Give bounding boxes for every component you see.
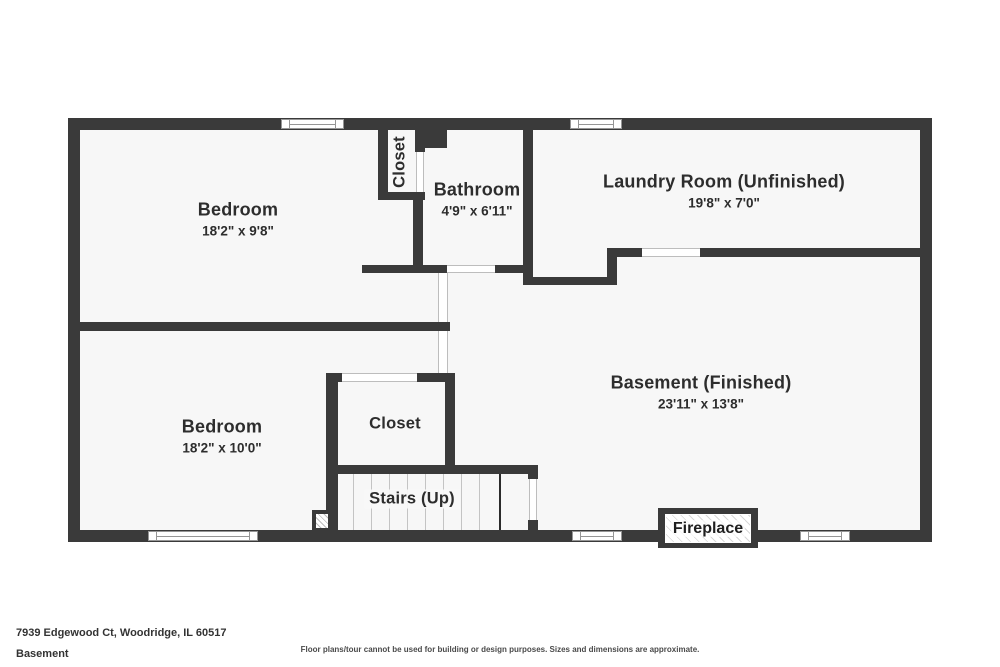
door-closet-top [416, 152, 424, 192]
wall-laundry-left [523, 130, 533, 285]
wall-laundry-bottom-left [607, 248, 642, 257]
stair-tread [461, 474, 462, 530]
fireplace: Fireplace [658, 508, 758, 548]
floor-plan-page: Fireplace Bedroom 18'2" x 9'8" Closet Ba… [0, 0, 1000, 667]
wall-stairs-right-top-stub [528, 465, 538, 479]
room-name: Laundry Room (Unfinished) [603, 172, 845, 193]
room-label-bedroom-bottom: Bedroom 18'2" x 10'0" [182, 417, 262, 456]
wall-laundry-bottom-right [700, 248, 920, 257]
door-hall-upper [438, 273, 448, 322]
room-name: Stairs (Up) [364, 490, 460, 509]
fireplace-hearth: Fireplace [665, 514, 751, 543]
fireplace-label: Fireplace [671, 520, 745, 537]
window-top-bedroom [281, 119, 344, 129]
room-label-bedroom-top: Bedroom 18'2" x 9'8" [198, 200, 278, 239]
room-name: Basement (Finished) [611, 373, 792, 394]
wall-outer-top [68, 118, 932, 130]
wall-outer-right [920, 118, 932, 542]
room-dims: 18'2" x 9'8" [198, 224, 278, 239]
room-name: Closet [369, 415, 421, 434]
wall-bathroom-bottom-left [362, 265, 447, 273]
support-post [312, 510, 332, 532]
stair-tread [479, 474, 480, 530]
room-label-closet-top: Closet [391, 136, 410, 188]
stair-tread [353, 474, 354, 530]
room-name: Closet [391, 136, 410, 188]
room-name: Bathroom [434, 180, 521, 201]
wall-closet-bottom-right [445, 373, 455, 474]
room-label-laundry: Laundry Room (Unfinished) 19'8" x 7'0" [603, 172, 845, 211]
room-label-closet-bottom: Closet [369, 415, 421, 434]
room-dims: 23'11" x 13'8" [611, 397, 792, 412]
window-top-laundry [570, 119, 622, 129]
wall-bedroom-divider [68, 322, 450, 331]
door-stairs [529, 479, 537, 520]
window-bottom-bedroom [148, 531, 258, 541]
wall-closet-bottom-top-stub [326, 373, 342, 382]
wall-laundry-alcove-bottom [523, 277, 617, 285]
door-hall-lower [438, 331, 448, 373]
room-name: Bedroom [182, 417, 262, 438]
door-laundry [642, 248, 700, 257]
disclaimer-text: Floor plans/tour cannot be used for buil… [301, 645, 700, 654]
room-dims: 18'2" x 10'0" [182, 441, 262, 456]
window-bottom-basement-left [572, 531, 622, 541]
wall-stairs-top [326, 465, 538, 474]
wall-stairs-right-bottom-stub [528, 520, 538, 530]
floor-plan-drawing: Fireplace Bedroom 18'2" x 9'8" Closet Ba… [0, 0, 1000, 667]
room-name: Bedroom [198, 200, 278, 221]
room-label-bathroom: Bathroom 4'9" x 6'11" [434, 180, 521, 219]
floor-level-label: Basement [16, 648, 69, 660]
property-address: 7939 Edgewood Ct, Woodridge, IL 60517 [16, 627, 226, 639]
room-dims: 19'8" x 7'0" [603, 196, 845, 211]
window-bottom-basement-right [800, 531, 850, 541]
wall-closet-top-right-stub [415, 130, 425, 152]
room-dims: 4'9" x 6'11" [434, 204, 521, 219]
room-label-stairs: Stairs (Up) [364, 490, 460, 509]
wall-closet-top-left [378, 130, 388, 200]
stair-break-line [499, 474, 501, 530]
door-bathroom [447, 265, 495, 273]
door-closet-bottom [342, 373, 417, 382]
wall-bathroom-left [413, 192, 423, 273]
wall-chase-block [425, 130, 447, 148]
room-label-basement: Basement (Finished) 23'11" x 13'8" [611, 373, 792, 412]
wall-closet-bottom-left [326, 373, 338, 530]
